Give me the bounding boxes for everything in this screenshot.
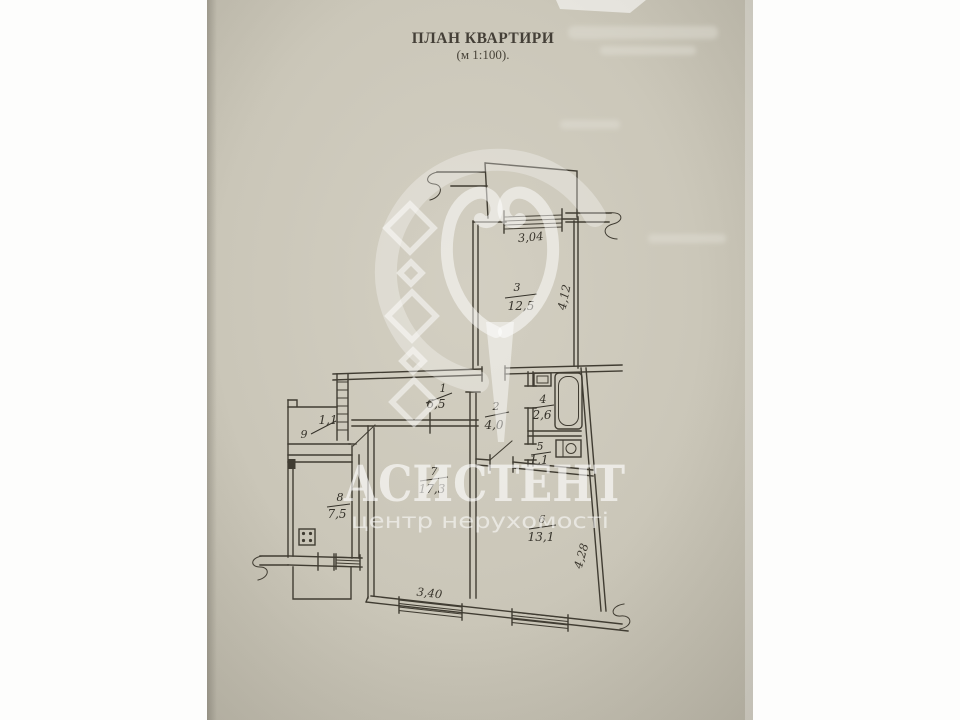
svg-text:9: 9 bbox=[301, 428, 308, 441]
paper-sheet bbox=[207, 0, 753, 720]
watermark-brand: АСИСТЕНТ bbox=[343, 454, 625, 513]
floor-plan-scan: ПЛАН КВАРТИРИ (м 1:100). bbox=[0, 0, 960, 720]
screenshot-root: ПЛАН КВАРТИРИ (м 1:100). bbox=[0, 0, 960, 720]
svg-text:4: 4 bbox=[539, 393, 547, 406]
page-title: ПЛАН КВАРТИРИ bbox=[412, 30, 555, 47]
svg-text:5: 5 bbox=[537, 440, 544, 453]
wall-hinge-mark bbox=[289, 459, 296, 469]
watermark-tagline: центр нерухомості bbox=[351, 509, 609, 534]
page-scale: (м 1:100). bbox=[457, 47, 510, 62]
svg-text:1: 1 bbox=[440, 382, 447, 395]
svg-text:1,1: 1,1 bbox=[318, 413, 337, 427]
svg-text:3: 3 bbox=[514, 281, 521, 294]
dim-top-window: 3,04 bbox=[517, 229, 544, 245]
svg-text:2,6: 2,6 bbox=[531, 408, 551, 422]
dim-bottom: 3,40 bbox=[416, 585, 443, 602]
